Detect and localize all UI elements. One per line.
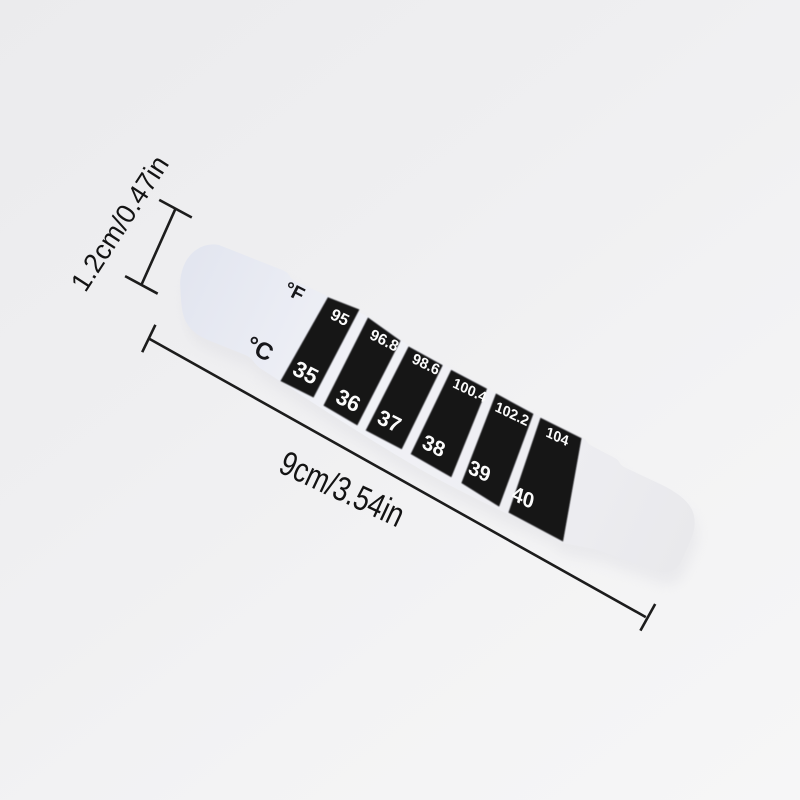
svg-text:1.2cm/0.47in: 1.2cm/0.47in xyxy=(64,150,174,297)
